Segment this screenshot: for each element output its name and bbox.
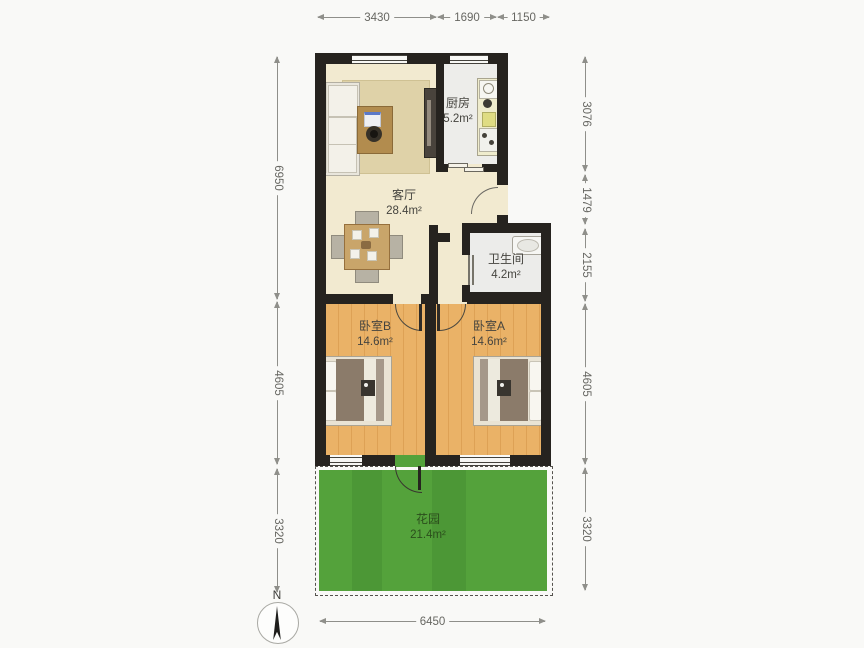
kitchen-label: 厨房 5.2m²	[432, 96, 484, 127]
kitchen-sliding-door	[464, 167, 484, 172]
counter-item	[482, 112, 496, 127]
dim-right-1: 3076	[585, 57, 586, 171]
vase-inner	[370, 130, 378, 138]
dim-right-2-value: 1479	[580, 183, 592, 217]
bed-foot-strip	[480, 359, 488, 421]
garden-name: 花园	[400, 512, 456, 528]
wall-bath-top-inner	[462, 223, 497, 233]
dim-left-1-value: 6950	[272, 161, 284, 195]
burner-knob	[483, 99, 492, 108]
bedroom-a-name: 卧室A	[461, 319, 517, 335]
wall-kitchen-bottom-seg	[482, 164, 508, 172]
dim-right-3: 2155	[585, 229, 586, 301]
bed-tray	[361, 380, 375, 396]
bathroom-name: 卫生间	[476, 252, 536, 268]
dim-right-4-value: 4605	[580, 367, 592, 401]
wall-bottom-seg	[510, 455, 551, 466]
wall-right-lower	[541, 223, 551, 466]
floor-plan-canvas: 厨房 5.2m² 客厅 28.4m² 卫生间 4.2m² 卧室B 14.6m² …	[0, 0, 864, 648]
dim-left-2-value: 4605	[272, 366, 284, 400]
dim-left-3: 3320	[277, 469, 278, 592]
wall-bottom-seg	[315, 455, 330, 466]
stove-burner	[489, 140, 494, 145]
dim-left-2: 4605	[277, 302, 278, 464]
bathroom-sink-basin	[517, 239, 539, 252]
dim-bottom-1: 6450	[320, 621, 545, 622]
wall-corridor-stub	[438, 233, 450, 242]
bed-blanket	[336, 359, 364, 421]
window-bedroom-a	[460, 457, 510, 466]
dim-right-3-value: 2155	[580, 248, 592, 282]
faucet-ring	[483, 83, 494, 94]
plate	[367, 251, 377, 261]
bathroom-door-line	[472, 255, 474, 285]
dim-top-2-value: 1690	[450, 12, 484, 24]
dim-top-3-value: 1150	[507, 12, 540, 24]
entry-threshold-floor	[497, 185, 508, 215]
tv-screen	[427, 100, 431, 146]
window-bedroom-b	[330, 457, 362, 466]
garden-label: 花园 21.4m²	[400, 512, 456, 543]
bathroom-label: 卫生间 4.2m²	[476, 252, 536, 283]
bathroom-door-line	[468, 255, 470, 285]
dim-right-2: 1479	[585, 175, 586, 224]
dim-top-1-value: 3430	[360, 12, 394, 24]
wall-kitchen-bottom-seg	[436, 164, 448, 172]
dim-left-1: 6950	[277, 57, 278, 299]
wall-bedrooms-top-seg	[421, 294, 437, 304]
living-room-name: 客厅	[378, 188, 430, 204]
bedroom-b-label: 卧室B 14.6m²	[347, 319, 403, 350]
bed-foot-strip	[376, 359, 384, 421]
bed-tray	[497, 380, 511, 396]
kitchen-area: 5.2m²	[432, 112, 484, 127]
garden-area: 21.4m²	[400, 528, 456, 543]
garden-door-leaf	[418, 466, 421, 490]
kitchen-name: 厨房	[432, 96, 484, 112]
dim-left-3-value: 3320	[272, 514, 284, 548]
bed-tray-cup	[364, 383, 368, 387]
dim-right-4: 4605	[585, 304, 586, 464]
wall-bottom-seg	[362, 455, 395, 466]
dim-right-5-value: 3320	[580, 512, 592, 546]
stove-burner	[482, 133, 487, 138]
bathroom-area: 4.2m²	[476, 268, 536, 283]
plate	[352, 230, 362, 240]
living-room-area: 28.4m²	[378, 204, 430, 219]
dim-right-5: 3320	[585, 468, 586, 590]
wall-left	[315, 53, 326, 466]
sofa-cushion	[328, 117, 357, 145]
sofa-cushion	[328, 144, 357, 173]
window-living-room	[352, 55, 407, 64]
wall-corridor	[429, 225, 438, 304]
bed-tray-cup	[500, 383, 504, 387]
wall-bath-left-upper	[462, 233, 470, 255]
wall-bedrooms-top-seg	[315, 294, 393, 304]
window-kitchen	[450, 55, 488, 64]
dim-right-1-value: 3076	[580, 97, 592, 131]
serving-dish	[361, 241, 371, 249]
dim-bottom-1-value: 6450	[416, 616, 450, 628]
dim-top-2: 1690	[438, 17, 496, 18]
living-room-label: 客厅 28.4m²	[378, 188, 430, 219]
dim-top-1: 3430	[318, 17, 436, 18]
bedroom-b-door-leaf	[419, 304, 422, 331]
sofa-chaise-cushion	[328, 85, 358, 117]
plate	[369, 228, 379, 238]
bedroom-a-label: 卧室A 14.6m²	[461, 319, 517, 350]
north-label: N	[269, 588, 285, 602]
plate	[350, 249, 360, 259]
dim-top-3: 1150	[498, 17, 549, 18]
bedroom-b-name: 卧室B	[347, 319, 403, 335]
magazine	[364, 112, 381, 127]
wall-between-bedrooms	[425, 304, 436, 466]
garden-grass-shade	[352, 470, 382, 591]
wall-bedrooms-top-seg	[467, 294, 551, 304]
bedroom-a-area: 14.6m²	[461, 335, 517, 350]
bedroom-b-area: 14.6m²	[347, 335, 403, 350]
bedroom-a-door-leaf	[437, 304, 440, 331]
